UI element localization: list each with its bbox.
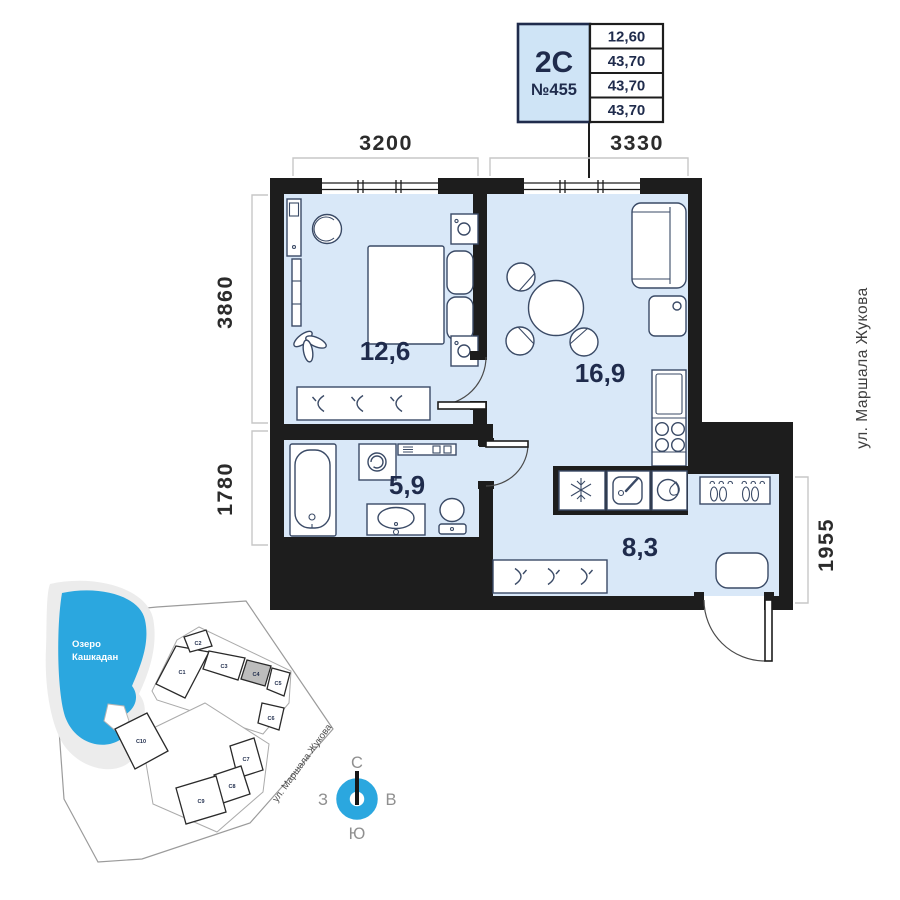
shoe-rack-icon <box>700 477 770 504</box>
dim-bracket-right <box>795 477 808 603</box>
building-label: С4 <box>252 672 260 678</box>
compass-south: Ю <box>349 825 366 843</box>
compass-west: З <box>318 791 328 809</box>
bathtub-icon <box>290 444 336 536</box>
chair-icon <box>570 328 598 356</box>
dim-top-right: 3330 <box>610 131 664 155</box>
dim-left-lower: 1780 <box>213 462 237 516</box>
window-living <box>524 178 640 194</box>
building-label: С2 <box>194 641 201 647</box>
dim-bracket-left-lower <box>252 431 268 545</box>
chair-icon <box>506 327 534 355</box>
dim-top-left: 3200 <box>359 131 413 155</box>
ottoman-icon <box>716 553 768 588</box>
building-label: С6 <box>267 716 274 722</box>
unit-number-label: №455 <box>531 81 577 99</box>
side-table-icon <box>649 296 686 336</box>
dim-bracket-left-upper <box>252 195 268 423</box>
unit-table-value: 43,70 <box>608 78 646 95</box>
room-area-bedroom: 12,6 <box>360 336 411 366</box>
nightstand-icon <box>451 214 478 244</box>
chair-icon <box>507 263 535 291</box>
building-label: С3 <box>220 664 227 670</box>
floorplan-page: 2С №455 12,60 43,70 43,70 43,70 3200 333… <box>0 0 900 900</box>
room-area-bathroom: 5,9 <box>389 470 425 500</box>
dish-dryer-icon <box>652 471 687 510</box>
hall-wardrobe-icon <box>493 560 607 593</box>
building-label: С1 <box>178 670 185 676</box>
street-label-right: ул. Маршала Жукова <box>854 287 871 449</box>
unit-table-value: 43,70 <box>608 53 646 70</box>
building-label: С5 <box>274 681 281 687</box>
lake-label: Озеро <box>72 639 101 650</box>
entrance-door <box>694 592 774 661</box>
sink-vanity-icon <box>367 504 425 535</box>
unit-type-label: 2С <box>535 46 573 79</box>
wardrobe-icon <box>297 387 430 420</box>
kitchen-counter <box>553 466 688 515</box>
building-label: С10 <box>136 739 146 745</box>
window-bedroom <box>322 178 438 194</box>
tv-console-icon <box>292 259 301 326</box>
kitchen-sink-icon <box>607 471 650 510</box>
lake-label: Кашкадан <box>72 652 118 663</box>
compass-rose: С В Ю З <box>318 754 396 843</box>
floor-plan: 12,6 <box>270 178 793 661</box>
sofa-icon <box>632 203 686 288</box>
site-map: Озеро Кашкадан С1 С2 С3 С4 С5 С6 С7 С8 С… <box>46 581 335 862</box>
room-area-hallway: 8,3 <box>622 532 658 562</box>
dining-table-icon <box>529 281 584 336</box>
unit-table-value: 43,70 <box>608 102 646 119</box>
armchair-icon <box>313 215 342 244</box>
dim-bracket-top-left <box>293 158 478 176</box>
fridge-icon <box>559 471 605 510</box>
kitchen-column-icon <box>652 370 686 466</box>
compass-north: С <box>351 754 363 772</box>
dim-left-upper: 3860 <box>213 275 237 329</box>
building-label: С9 <box>197 799 204 805</box>
bathroom-shelf-icon <box>398 444 456 455</box>
building-label: С8 <box>228 784 235 790</box>
dim-right: 1955 <box>814 518 838 572</box>
compass-east: В <box>385 791 396 809</box>
floorplan-canvas: 2С №455 12,60 43,70 43,70 43,70 3200 333… <box>0 0 900 900</box>
room-area-living: 16,9 <box>575 358 626 388</box>
toilet-icon <box>439 499 466 535</box>
unit-table-value: 12,60 <box>608 29 646 46</box>
building-label: С7 <box>242 757 249 763</box>
